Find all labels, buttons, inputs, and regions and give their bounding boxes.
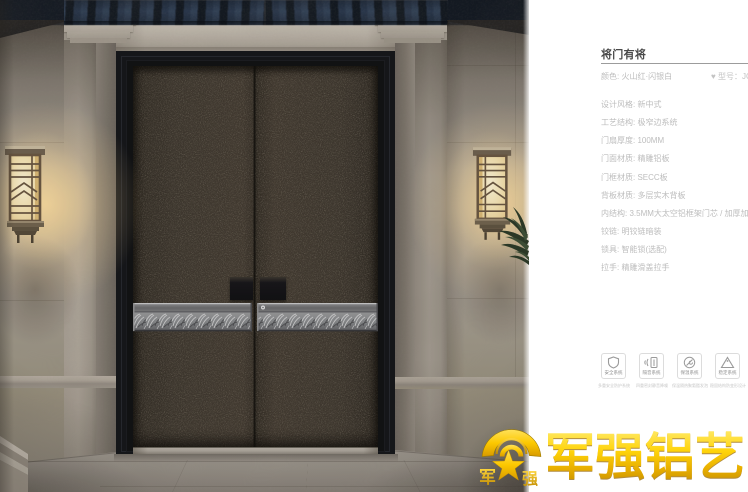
svg-text:强: 强 <box>522 470 538 488</box>
svg-text:军: 军 <box>479 468 496 487</box>
